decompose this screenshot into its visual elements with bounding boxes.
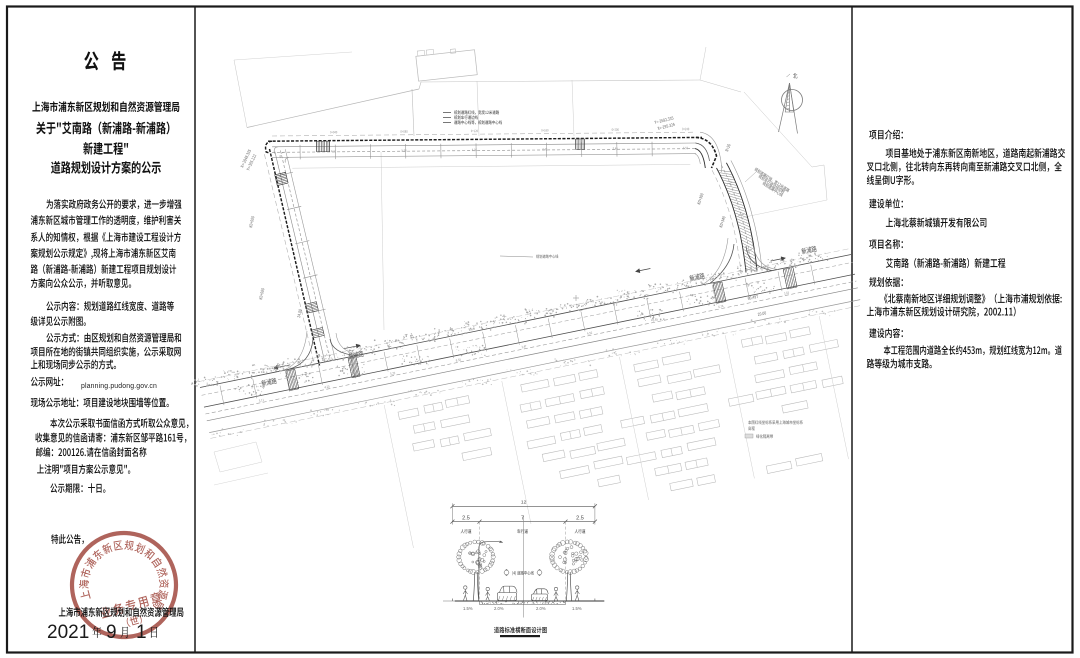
- svg-text:2.0%: 2.0%: [494, 606, 504, 611]
- svg-text:2.5: 2.5: [576, 516, 584, 522]
- svg-text:12: 12: [521, 500, 527, 506]
- svg-text:2.0%: 2.0%: [536, 606, 546, 611]
- svg-text:2021: 2021: [47, 622, 89, 643]
- svg-text:1: 1: [136, 622, 147, 643]
- svg-text:planning.pudong.gov.cn: planning.pudong.gov.cn: [81, 383, 157, 390]
- svg-text:1.5%: 1.5%: [463, 606, 473, 611]
- svg-text:2.5: 2.5: [462, 516, 470, 522]
- svg-text:1.5%: 1.5%: [572, 606, 582, 611]
- svg-text:9: 9: [106, 622, 117, 643]
